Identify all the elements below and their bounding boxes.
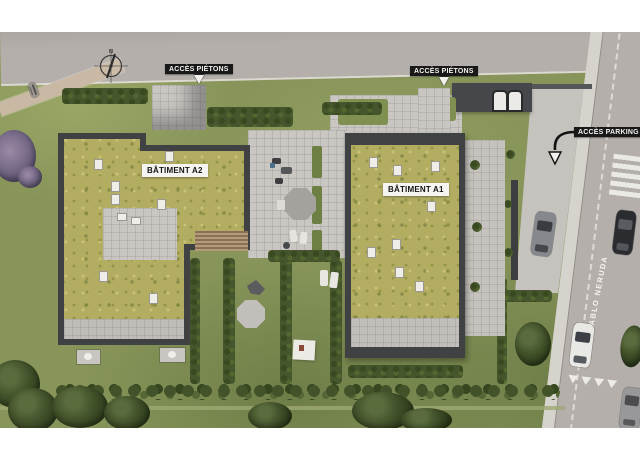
down-pointer-icon <box>439 77 449 86</box>
picnic-item <box>299 345 304 351</box>
driveway-shrub <box>504 248 513 257</box>
wooden-deck <box>195 231 248 251</box>
courtyard-planter <box>312 146 322 178</box>
garage-door <box>507 90 523 112</box>
roof-skylight <box>368 248 375 257</box>
driveway-wall <box>511 180 518 280</box>
give-way-triangle <box>581 376 592 385</box>
tree <box>8 388 58 428</box>
pedestrian-access-tag-2: ACCÈS PIÉTONS <box>410 66 478 86</box>
roof-skylight <box>396 268 403 277</box>
roof-skylight <box>370 158 377 167</box>
car-dark-driving <box>612 209 637 255</box>
garden-hedge-horizontal <box>268 250 340 262</box>
roof-skylight <box>150 294 157 303</box>
walkway-shrub <box>472 222 482 232</box>
garden-table <box>84 353 92 360</box>
driveway-tree <box>515 322 551 366</box>
roof-skylight <box>394 166 401 175</box>
driveway-shrub <box>506 150 515 159</box>
walkway-shrub <box>470 282 480 292</box>
car-parked-roadside <box>618 387 640 428</box>
give-way-triangle <box>568 375 579 384</box>
tree <box>248 402 292 428</box>
flowering-tree <box>18 166 42 188</box>
building-a1 <box>345 133 465 358</box>
roof-skylight <box>95 160 102 169</box>
courtyard-bench <box>277 200 285 210</box>
courtyard-lounger <box>299 232 307 245</box>
garden-lounger <box>320 270 328 286</box>
tree <box>400 408 452 428</box>
courtyard-table-dark <box>283 242 290 249</box>
garden-hedge-vertical <box>280 254 292 384</box>
courtyard-lounger <box>289 230 298 243</box>
garden-hedge-horizontal <box>348 365 463 378</box>
roof-skylight <box>416 282 423 291</box>
roof-skylight <box>118 214 126 220</box>
roof-skylight <box>432 162 439 171</box>
roof-skylight <box>100 272 107 281</box>
building-a1-roof-terrace <box>351 318 459 347</box>
courtyard-table <box>281 167 292 174</box>
street-tree <box>618 324 640 369</box>
building-a2-label: BÂTIMENT A2 <box>142 164 208 177</box>
courtyard-bin <box>270 163 275 168</box>
tree <box>52 386 108 428</box>
down-pointer-icon <box>194 75 204 84</box>
pedestrian-access-tag-1: ACCÈS PIÉTONS <box>165 64 233 84</box>
east-walkway <box>465 140 505 336</box>
roof-skylight <box>428 202 435 211</box>
roof-skylight <box>132 218 140 224</box>
garden-table <box>168 351 176 358</box>
pedestrian-access-tag-1-label: ACCÈS PIÉTONS <box>165 64 233 74</box>
garage-door <box>492 90 508 112</box>
driveway-shrub <box>504 200 512 208</box>
hedge-row <box>207 107 293 127</box>
boundary-wall <box>532 84 592 89</box>
roof-skylight <box>393 240 400 249</box>
give-way-triangle <box>593 378 604 387</box>
building-a2-roof-terrace <box>103 208 177 260</box>
aerial-site-plan: RUE PABLO NERUDA <box>0 32 640 428</box>
roof-skylight <box>166 152 173 161</box>
car-white-driving <box>569 322 595 368</box>
building-a2-lower-terrace <box>64 319 184 339</box>
site-plan-image: RUE PABLO NERUDA <box>0 0 640 470</box>
crosswalk <box>609 154 640 207</box>
give-way-triangle <box>606 380 617 389</box>
hedge-row <box>322 102 382 115</box>
pedestrian-access-tag-2-label: ACCÈS PIÉTONS <box>410 66 478 76</box>
picnic-blanket <box>292 339 315 360</box>
tree <box>104 396 150 428</box>
roof-skylight <box>158 200 165 209</box>
roof-skylight <box>112 182 119 191</box>
building-a1-label: BÂTIMENT A1 <box>383 183 449 196</box>
roof-skylight <box>112 195 119 204</box>
parking-access-arrow-icon <box>542 124 592 170</box>
compass-icon: N <box>92 45 130 83</box>
walkway-shrub <box>470 160 480 170</box>
hedge-row <box>62 88 148 104</box>
building-a1-green-roof <box>351 145 459 318</box>
pedestrian-walkway-1 <box>152 85 206 130</box>
courtyard-chair <box>275 178 283 184</box>
